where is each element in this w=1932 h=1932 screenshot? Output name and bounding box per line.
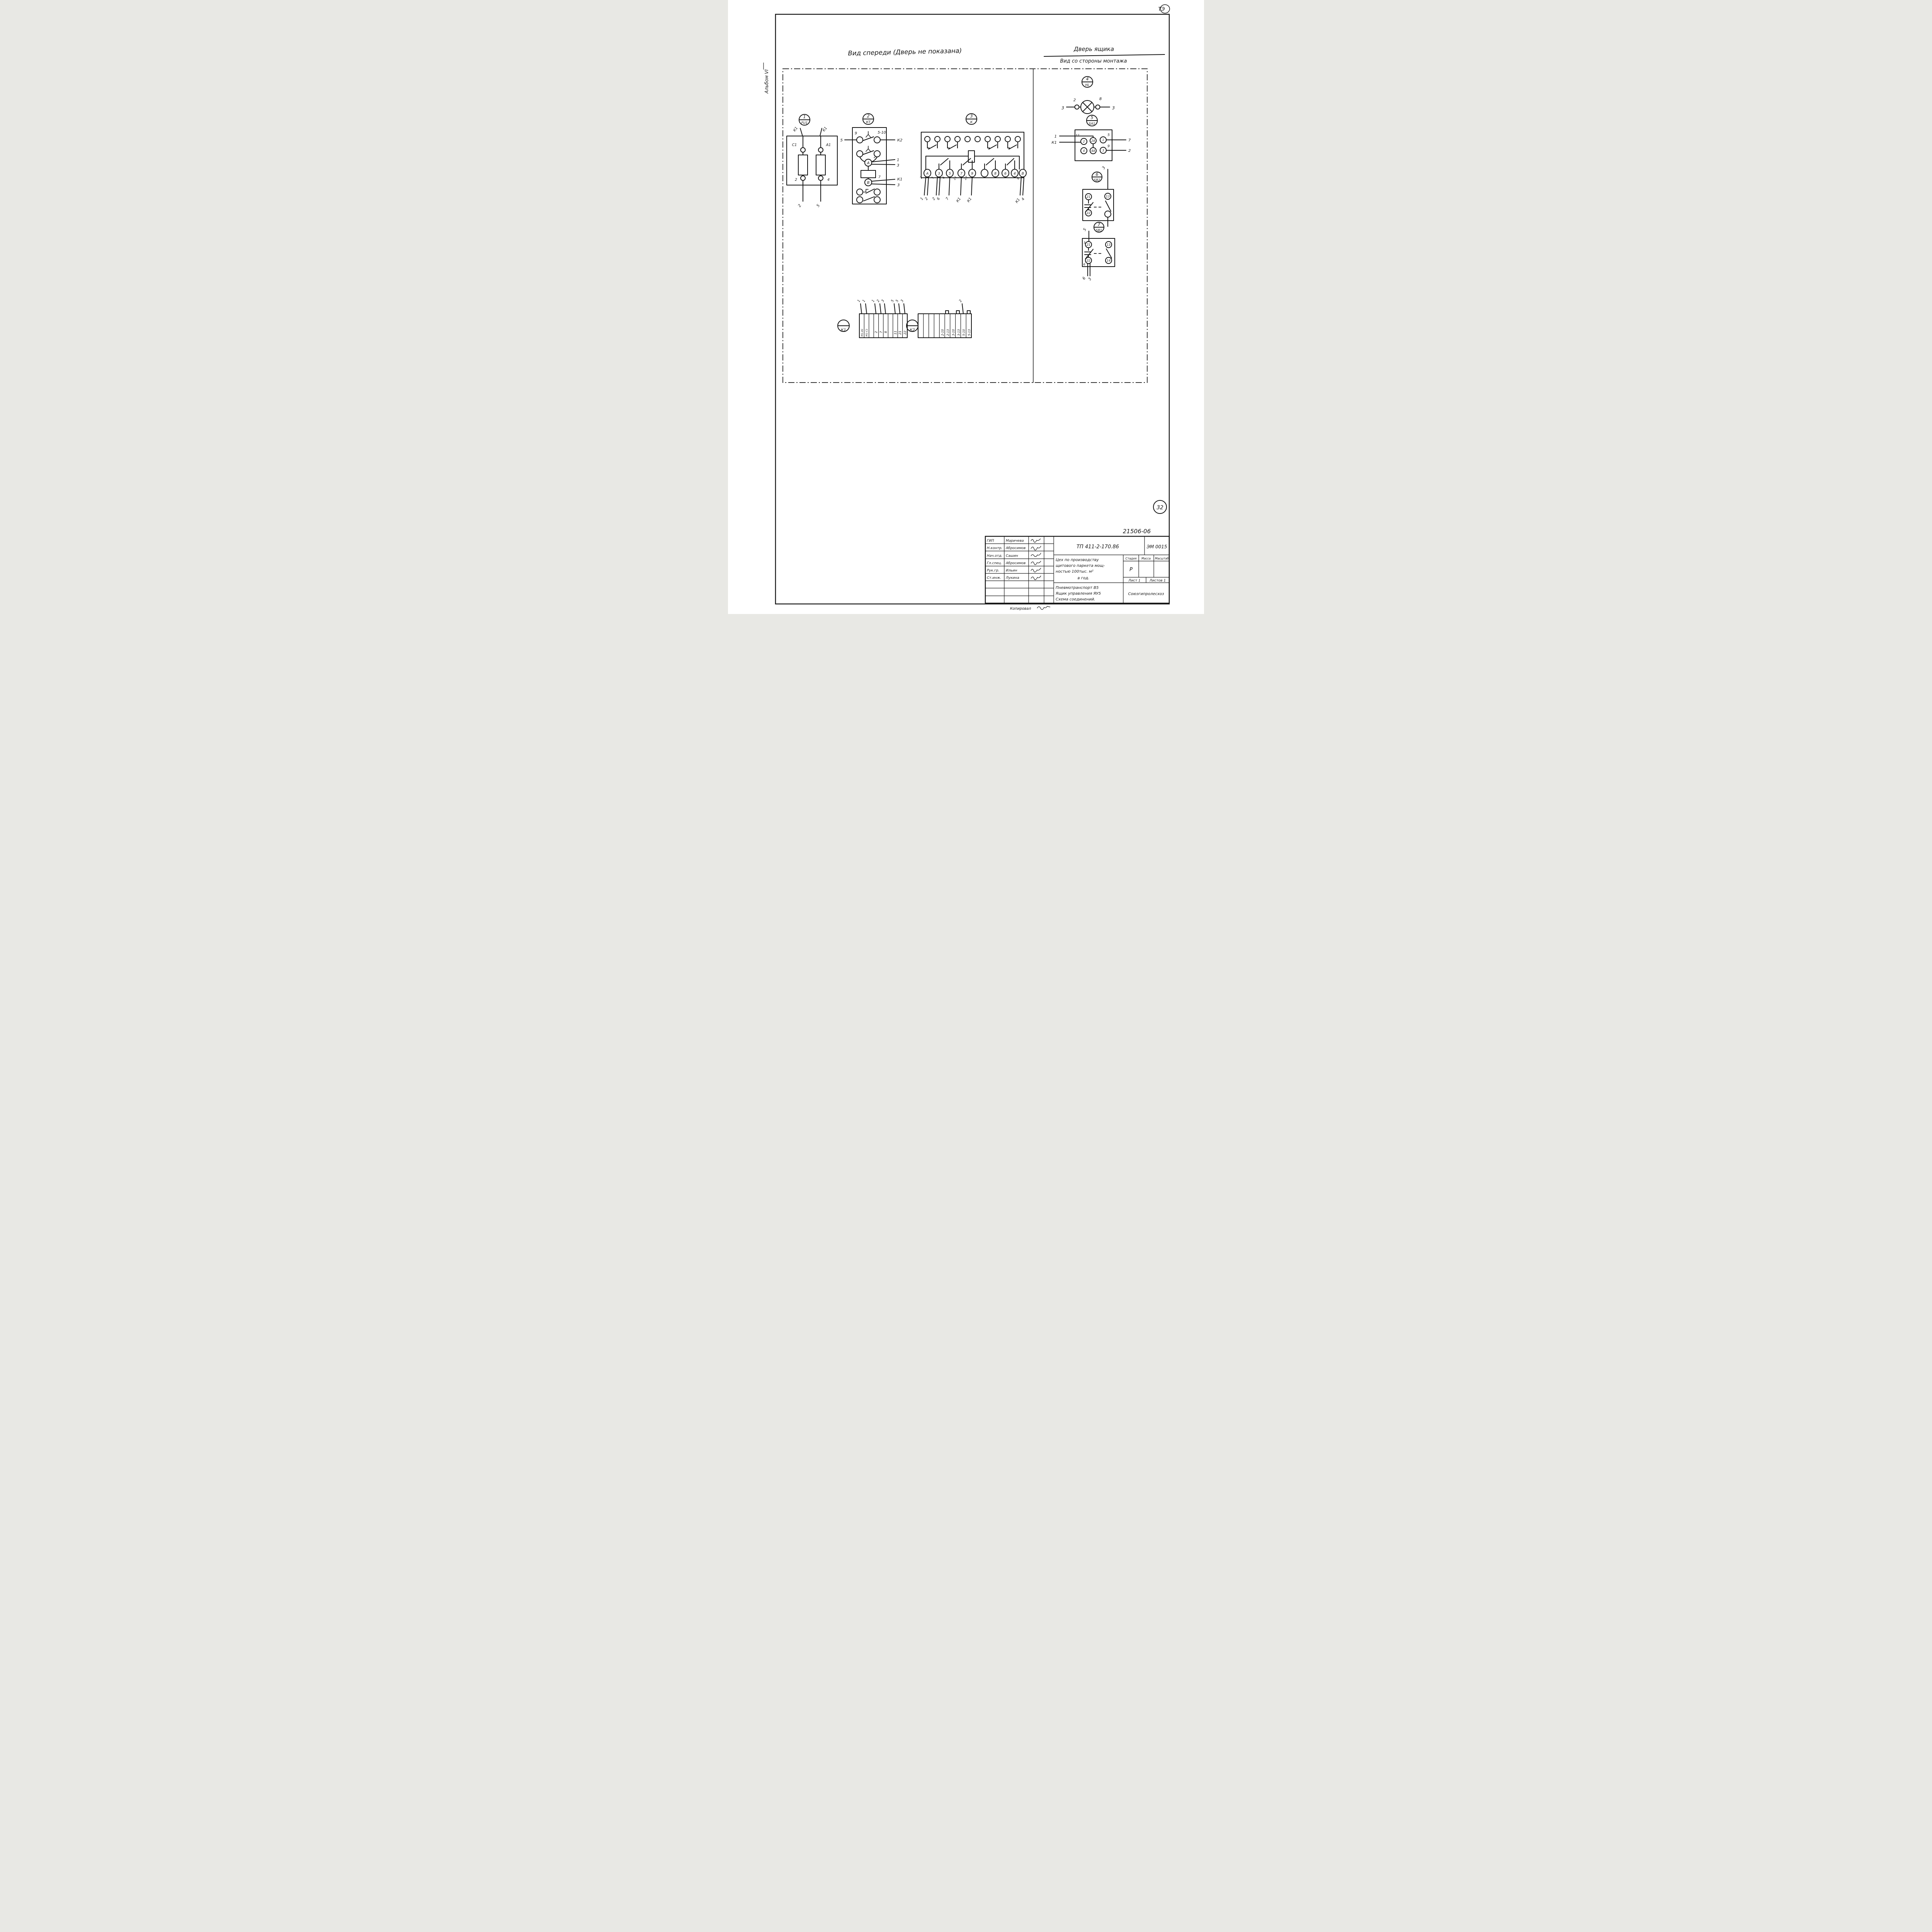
sb2-id-tag: SB2 <box>1094 179 1100 182</box>
tp-number: ТП 411-2-170.86 <box>1077 544 1119 550</box>
doc-number: 21506-06 <box>1123 528 1151 535</box>
fu1-term-2: 2 <box>795 178 797 182</box>
sb1-wire-5: 5 <box>1083 228 1088 232</box>
svg-text:21: 21 <box>952 175 957 181</box>
kt-contact-num-5-10: 5-10 <box>878 131 886 135</box>
mass-header: Масса <box>1141 557 1151 560</box>
svg-text:2: 2 <box>876 299 881 303</box>
fu1-wire-2: 2 <box>798 204 803 208</box>
sb1-wire-3: 3 <box>1088 277 1093 282</box>
svg-text:5: 5 <box>949 172 951 176</box>
svg-text:К1: К1 <box>1015 197 1021 204</box>
page-number: 32 <box>1156 505 1163 511</box>
sb1-term-14: 14 <box>1107 259 1111 262</box>
person-name: Абросимов <box>1005 561 1026 565</box>
title-block-people: ГИП Маричева Н.контр. Абросимов Нач.отд.… <box>987 539 1041 580</box>
svg-text:Пневмотранспорт В5: Пневмотранспорт В5 <box>1056 586 1099 590</box>
component-k: 3 К <box>919 114 1026 204</box>
fu1-term-c1: С1 <box>792 143 797 147</box>
schematic-canvas: ТЭ Альбом VI Вид спереди (Дверь не показ… <box>728 0 1204 614</box>
title-block: ГИП Маричева Н.контр. Абросимов Нач.отд.… <box>985 536 1169 603</box>
kt-coil-b: В <box>867 181 870 185</box>
svg-text:3-13: 3-13 <box>957 329 961 336</box>
k1-block-tag: К1 <box>841 328 846 332</box>
person-role: Ст.инж. <box>987 576 1001 580</box>
component-sb1: 7 SB1 5 5 21 13 22 14 6 6 3 <box>1082 222 1115 281</box>
svg-text:1: 1 <box>871 299 876 303</box>
sb1-id-tag: SB1 <box>1096 229 1102 233</box>
svg-text:1: 1 <box>857 299 862 303</box>
svg-text:3: 3 <box>900 299 905 303</box>
k2-block-wires: 2 <box>946 299 970 314</box>
svg-text:2: 2 <box>932 197 936 201</box>
component-kt: 2 КТ 9 5-10 5 К2 А 2 1 3 В 7 <box>840 114 903 204</box>
sheets-label: Листов 1 <box>1149 579 1166 583</box>
svg-text:6: 6 <box>1004 172 1007 176</box>
person-name: Ильин <box>1006 569 1017 573</box>
sa1-num-11: 11 <box>1076 134 1080 137</box>
sb1-term-21: 21 <box>1087 243 1090 247</box>
sb1-wire-6: 6 <box>1082 276 1087 281</box>
svg-text:3: 3 <box>938 172 940 176</box>
hl-id-number: 4 <box>1086 77 1089 82</box>
svg-text:1: 1 <box>920 197 924 201</box>
copied-by: Копировал <box>1010 606 1050 611</box>
component-sb2: 6 SB2 3 21 13 22 <box>1083 166 1114 226</box>
svg-text:11: 11 <box>894 331 897 335</box>
svg-text:К1: К1 <box>956 197 962 203</box>
sb1-inner-6: 6 <box>1083 263 1085 266</box>
person-role: Нач.отд. <box>987 554 1002 558</box>
sa1-wire-1: 1 <box>1054 134 1057 139</box>
sa1-id-tag: SA1 <box>1089 122 1095 126</box>
kt-a-wire-num: 2 <box>874 155 876 159</box>
sb1-id-number: 7 <box>1098 222 1100 227</box>
svg-text:В: В <box>1022 172 1024 176</box>
sa1-term-1: 1 <box>1102 138 1104 142</box>
svg-text:22: 22 <box>903 331 907 335</box>
person-role: ГИП <box>987 539 994 543</box>
kt-a-dest-3: 3 <box>897 163 899 168</box>
k-drop-wires: 1 2 2 6 7 К1 К1 К1 4 <box>920 177 1026 204</box>
album-label: Альбом VI <box>764 69 769 94</box>
door-view-title-group: Дверь ящика Вид со стороны монтажа <box>1044 46 1165 64</box>
svg-text:1: 1 <box>862 299 867 303</box>
hl-term-left: 2 <box>1073 98 1076 102</box>
terminal-block-k2: К2 2-10 2-13 3-10 3-13 5-10 5-13 2 <box>906 299 971 338</box>
kt-wire-k2: К2 <box>897 138 902 143</box>
svg-text:7: 7 <box>879 331 883 333</box>
k-top-terminals <box>925 136 1020 142</box>
album-label-group: Альбом VI <box>764 63 769 94</box>
sb2-term-22: 22 <box>1087 211 1090 215</box>
sa1-term-4a: 4А <box>1091 149 1095 153</box>
project-description: Цех по производству щитового паркета мощ… <box>1056 558 1105 580</box>
svg-text:3-10: 3-10 <box>952 329 955 336</box>
svg-text:7: 7 <box>960 172 963 176</box>
svg-text:4: 4 <box>1021 197 1026 201</box>
svg-text:8: 8 <box>994 172 997 176</box>
hl-wire-right: 3 <box>1112 105 1115 111</box>
svg-text:ностью 100тыс. м²: ностью 100тыс. м² <box>1056 570 1094 574</box>
terminal-block-k1: К1 М1-А1 М1-С1 2 7 8 11 21 22 <box>838 299 907 338</box>
sheet-label: Лист 1 <box>1128 579 1140 583</box>
sa1-term-2: 2 <box>1083 140 1085 143</box>
k1-block-wires: 1 1 1 2 3 5 5 3 <box>857 299 905 314</box>
svg-text:21: 21 <box>898 331 902 335</box>
kt-a-dest-1: 1 <box>897 158 899 162</box>
svg-text:7: 7 <box>945 197 950 201</box>
kt-id-number: 2 <box>867 114 870 119</box>
svg-text:2-13: 2-13 <box>946 329 950 336</box>
component-fu1: 1 FU1 К1 К1 С1 А1 2 4 2 5 <box>787 114 837 208</box>
drawing-sheet: ТЭ Альбом VI Вид спереди (Дверь не показ… <box>728 0 1204 614</box>
svg-text:Ящик управления ЯУ5: Ящик управления ЯУ5 <box>1055 592 1101 596</box>
svg-text:5: 5 <box>895 299 900 303</box>
sb2-wire-3: 3 <box>1102 166 1107 170</box>
sb2-term-21: 21 <box>1087 195 1090 199</box>
svg-text:8: 8 <box>884 331 888 333</box>
kt-contact-num-9: 9 <box>855 131 857 136</box>
svg-text:К1: К1 <box>966 197 973 203</box>
kt-id-tag: КТ <box>866 121 871 124</box>
subject-description: Пневмотранспорт В5 Ящик управления ЯУ5 С… <box>1055 586 1101 602</box>
hl-id-tag: HL <box>1085 83 1089 87</box>
svg-text:в год.: в год. <box>1078 576 1090 580</box>
sb2-id-number: 6 <box>1096 172 1099 177</box>
svg-text:Цех по производству: Цех по производству <box>1056 558 1099 562</box>
fu1-term-a1: А1 <box>826 143 831 147</box>
svg-text:4: 4 <box>1014 172 1016 176</box>
svg-text:5-10: 5-10 <box>962 329 966 336</box>
person-name: Сашин <box>1006 554 1018 558</box>
svg-text:2-10: 2-10 <box>941 329 944 336</box>
stage-header: Стадия <box>1126 557 1137 560</box>
svg-text:5: 5 <box>891 299 895 303</box>
fu1-wire-k1-right: К1 <box>822 126 828 133</box>
scale-header: Масштаб <box>1155 557 1169 560</box>
fu1-id-number: 1 <box>803 114 806 119</box>
sa1-wire-7: 7 <box>1128 138 1131 143</box>
k2-block-cell-labels: 2-10 2-13 3-10 3-13 5-10 5-13 <box>941 329 971 336</box>
person-name: Абросимов <box>1005 546 1026 550</box>
sb1-term-13: 13 <box>1107 243 1111 247</box>
sb2-term-13: 13 <box>1106 195 1110 198</box>
fu1-wire-k1-left: К1 <box>793 126 799 133</box>
svg-text:щитового паркета мощ-: щитового паркета мощ- <box>1056 564 1105 568</box>
k1-block-cell-labels: М1-А1 М1-С1 2 7 8 11 21 22 <box>861 328 907 337</box>
svg-text:22: 22 <box>963 175 968 181</box>
svg-text:М1-А1: М1-А1 <box>861 328 864 337</box>
svg-text:А: А <box>926 172 929 176</box>
k2-wire-2: 2 <box>959 299 963 303</box>
kt-coil-a: А <box>867 161 870 165</box>
kt-b-wire-num: 7 <box>878 175 881 179</box>
k-bottom-contacts <box>939 158 1015 169</box>
person-role: Гл.спец. <box>987 561 1002 565</box>
organization: Союзгипролесхоз <box>1128 592 1164 596</box>
svg-text:1: 1 <box>931 176 935 179</box>
k-id-number: 3 <box>970 114 973 119</box>
hl-wire-left: 3 <box>1061 105 1064 111</box>
svg-text:Схема соединений.: Схема соединений. <box>1056 597 1095 602</box>
svg-text:3: 3 <box>881 299 886 303</box>
svg-text:2: 2 <box>924 197 929 201</box>
fu1-id-tag: FU1 <box>801 121 808 125</box>
sa1-wire-2: 2 <box>1128 149 1131 153</box>
fu1-wire-5: 5 <box>816 204 821 208</box>
front-view-title: Вид спереди (Дверь не показана) <box>848 47 962 57</box>
svg-text:6: 6 <box>936 197 941 201</box>
person-name: Маричева <box>1006 539 1024 543</box>
kt-b-dest-k1: К1 <box>897 177 902 182</box>
sa1-num-9: 9 <box>1107 145 1110 148</box>
svg-text:9: 9 <box>971 172 973 176</box>
hl-term-right: 8 <box>1099 97 1102 101</box>
person-role: Н.контр. <box>987 546 1002 550</box>
svg-text:8: 8 <box>1016 177 1020 180</box>
k2-block-tag: К2 <box>910 328 915 332</box>
kt-wire-5: 5 <box>840 138 843 143</box>
component-hl: 4 HL 3 2 8 3 <box>1061 77 1115 114</box>
code-em0015: ЭМ 0015 <box>1146 544 1167 549</box>
svg-text:М1-С1: М1-С1 <box>865 328 868 337</box>
sa1-wire-k1: К1 <box>1052 141 1057 145</box>
k-bottom-terminals: А 3 5 7 9 8 6 4 В <box>924 169 1026 177</box>
component-sa1: 5 SA1 1 К1 11 2 2А 1 4 4А 3 5 9 7 2 <box>1052 115 1131 161</box>
door-view-subtitle: Вид со стороны монтажа <box>1060 58 1127 64</box>
svg-text:5-13: 5-13 <box>968 329 971 336</box>
door-view-title: Дверь ящика <box>1073 46 1114 53</box>
k-top-contacts <box>927 142 1018 149</box>
k-id-tag: К <box>970 121 973 124</box>
sheet-frame: ТЭ <box>776 5 1170 604</box>
svg-text:6: 6 <box>942 176 946 179</box>
kt-b-dest-3: 3 <box>897 183 900 187</box>
sa1-term-2a: 2А <box>1091 139 1095 143</box>
sa1-num-5: 5 <box>1107 133 1110 137</box>
person-name: Лукина <box>1005 576 1019 580</box>
sb1-term-22: 22 <box>1087 259 1090 262</box>
fu1-term-4: 4 <box>827 178 830 182</box>
sa1-term-4: 4 <box>1083 149 1085 153</box>
svg-text:2: 2 <box>874 331 878 333</box>
sa1-id-number: 5 <box>1091 115 1094 120</box>
copied-label: Копировал <box>1010 607 1031 611</box>
stage-value: Р <box>1129 567 1133 573</box>
sa1-term-3: 3 <box>1102 149 1104 152</box>
person-role: Рук.гр. <box>987 569 999 573</box>
